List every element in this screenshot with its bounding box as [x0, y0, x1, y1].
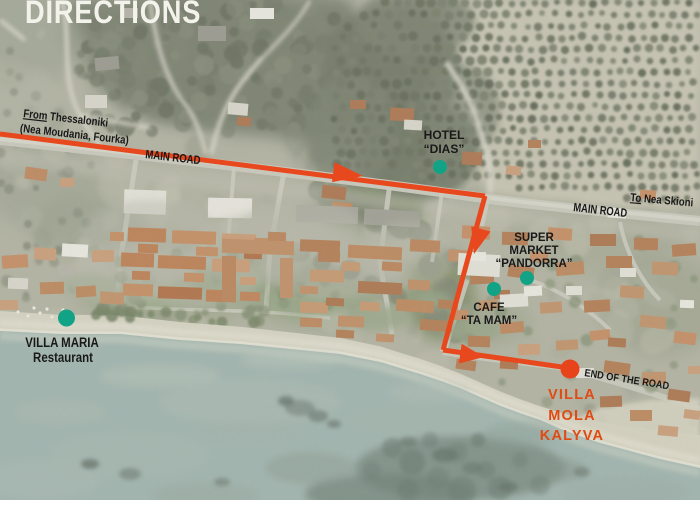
svg-text:VILLA: VILLA	[548, 387, 596, 403]
svg-text:“DIAS”: “DIAS”	[424, 142, 465, 156]
svg-text:CAFE: CAFE	[473, 302, 505, 314]
svg-text:HOTEL: HOTEL	[424, 128, 465, 142]
svg-text:“PANDORRA”: “PANDORRA”	[495, 258, 572, 270]
svg-text:VILLA MARIA: VILLA MARIA	[25, 335, 98, 350]
svg-text:MARKET: MARKET	[509, 245, 558, 257]
svg-text:KALYVA: KALYVA	[540, 428, 604, 444]
svg-text:SUPER: SUPER	[514, 232, 554, 244]
svg-text:“TA MAM”: “TA MAM”	[461, 315, 517, 327]
svg-text:Restaurant: Restaurant	[33, 350, 94, 365]
svg-text:DIRECTIONS: DIRECTIONS	[25, 0, 201, 31]
svg-text:MOLA: MOLA	[548, 408, 596, 424]
